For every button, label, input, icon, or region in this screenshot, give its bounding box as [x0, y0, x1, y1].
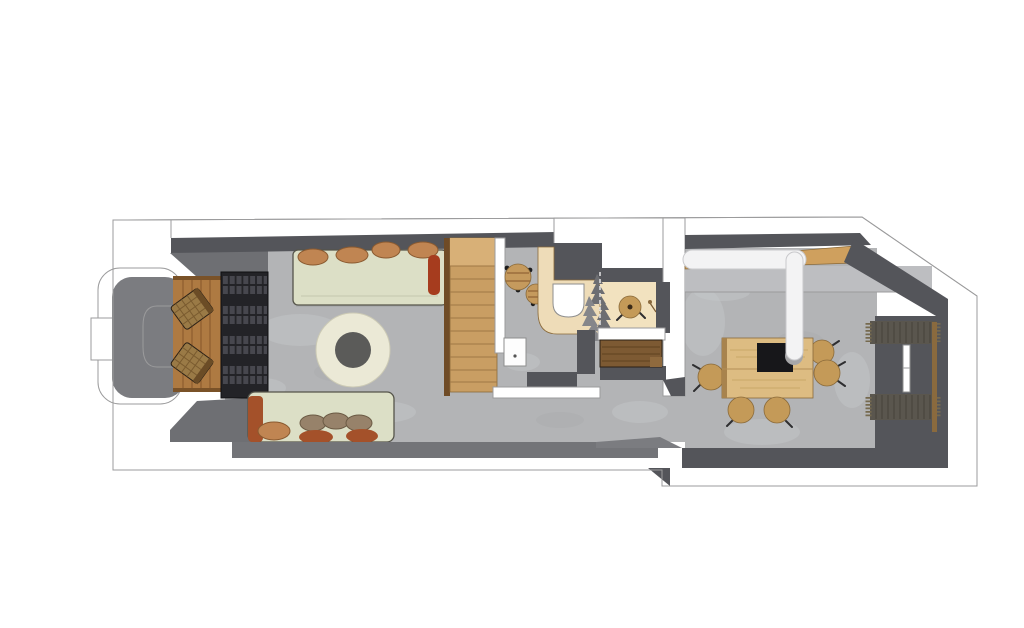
duct-vertical	[786, 252, 803, 360]
stair-stringer	[444, 238, 450, 396]
pillow	[300, 415, 326, 431]
pillow	[346, 429, 378, 443]
bathroom-south-wall-left	[493, 387, 600, 398]
island-edge	[722, 338, 727, 398]
dining-stool-1	[693, 364, 724, 391]
pillow	[323, 413, 349, 429]
lounge-south-wall	[232, 442, 658, 458]
bathroom-east-wall-dark	[656, 282, 670, 333]
radiator-wood-strip	[932, 322, 937, 432]
wooden-bench	[600, 340, 662, 367]
shelving-unit	[221, 272, 268, 398]
stool-center	[628, 305, 633, 310]
sofa-bolster	[428, 255, 440, 295]
sofa-top	[293, 242, 447, 307]
pillow	[258, 422, 290, 440]
rug-center	[335, 332, 371, 368]
washing-machine	[504, 338, 526, 366]
bathroom-inner-wall-face	[527, 372, 577, 387]
dining-south-wall	[682, 448, 948, 468]
sofa-bottom	[248, 392, 394, 444]
floor-plan-stage	[0, 0, 1024, 628]
pillow	[346, 415, 372, 431]
bathroom-north-wall-corner	[552, 243, 602, 268]
counter-side-wall	[577, 330, 595, 374]
deck-edge-top	[173, 276, 221, 280]
pillow	[336, 247, 368, 263]
bench-step	[650, 357, 662, 367]
dining-stool-5	[814, 360, 845, 386]
pillow	[299, 430, 333, 444]
floor-plan-svg	[0, 0, 1024, 628]
stair-landing	[450, 238, 497, 266]
bathroom-south-wall-white	[598, 328, 665, 340]
bench-shadow-wall	[600, 366, 666, 380]
sink	[553, 284, 584, 317]
washing-machine-knob	[513, 354, 516, 357]
pillow	[372, 242, 400, 258]
wall-window-slit	[903, 345, 910, 392]
staircase	[444, 238, 497, 396]
shelving-grid	[222, 275, 267, 396]
radiator-panel-lower	[869, 394, 938, 420]
bay-window-notch	[91, 318, 113, 360]
round-rug	[316, 313, 390, 387]
radiator-panel-upper	[869, 321, 938, 344]
deck-edge-bottom	[173, 388, 221, 392]
pillow	[298, 249, 328, 265]
stair-side-wall	[495, 238, 505, 353]
